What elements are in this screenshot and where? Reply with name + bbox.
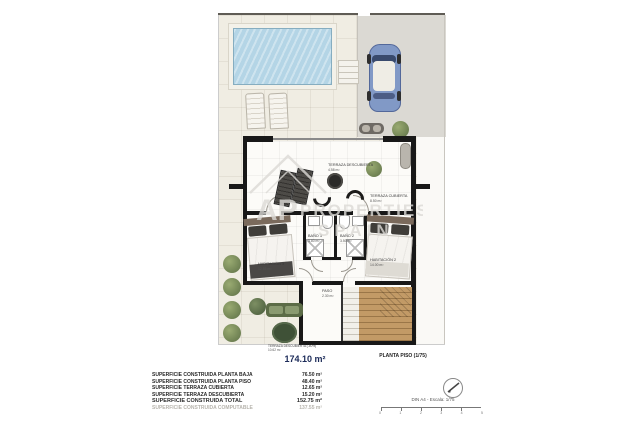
room-label-paso: PASO 2.30 m² xyxy=(322,289,334,298)
room-label-habitacion3: HABITACIÓN 3 12.55 m² xyxy=(258,262,284,271)
legend-row: SUPERFICIE CONSTRUIDA PLANTA BAJA 76.50 … xyxy=(152,372,322,379)
legend-row: SUPERFICIE TERRAZA CUBIERTA 12.65 m² xyxy=(152,385,322,392)
room-name: PASO xyxy=(322,289,334,294)
legend-value: 137.55 m² xyxy=(299,405,322,412)
garden-bench xyxy=(266,303,303,317)
bed-habitacion2 xyxy=(363,214,414,279)
terrace-round-table xyxy=(327,173,343,189)
car-roof xyxy=(373,61,395,91)
sink xyxy=(352,216,364,226)
staircase-landing xyxy=(343,287,359,341)
room-label-bano2: BAÑO 2 3.50 m² xyxy=(340,234,354,243)
plot-boundary-left xyxy=(218,15,219,345)
swimming-pool xyxy=(233,28,332,85)
terrace-railing xyxy=(273,138,383,140)
wall-terrace-pillar-left xyxy=(243,136,273,142)
room-name: BAÑO 2 xyxy=(340,234,354,239)
scale-tick: 2 xyxy=(420,411,422,415)
room-area: 12.55 m² xyxy=(258,267,284,271)
pool-water-texture xyxy=(234,29,331,84)
scale-tick: 1 xyxy=(399,411,401,415)
scale-tick: 3 xyxy=(440,411,442,415)
plot-boundary-top xyxy=(218,13,445,15)
wall-segment xyxy=(243,281,299,285)
legend-label: SUPERFICIE TERRAZA CUBIERTA xyxy=(152,385,234,392)
room-name: BAÑO 3 xyxy=(308,234,322,239)
bench-cushion xyxy=(285,306,299,314)
sun-lounger xyxy=(268,93,289,130)
floor-plan-sheet: TERRAZA DESCUBIERTA 4.58 m² TERRAZA CUBI… xyxy=(0,0,630,423)
bed-pillow xyxy=(370,223,389,234)
room-area: 14.00 m² xyxy=(370,263,396,267)
scale-tick: 4 xyxy=(461,411,463,415)
wall-terrace-pillar-right xyxy=(383,136,416,142)
plot-area-title: 174.10 m² xyxy=(230,354,380,364)
hedge-plant xyxy=(223,324,241,342)
car-wheel xyxy=(367,91,371,101)
sun-lounger xyxy=(245,93,266,130)
legend-row-computable: SUPERFICIE CONSTRUIDA COMPUTABLE 137.55 … xyxy=(152,405,322,412)
bed-pillow xyxy=(248,225,267,237)
wall-segment xyxy=(243,211,266,215)
staircase-upper-flight-hatch xyxy=(380,287,411,317)
legend-label: SUPERFICIE CONSTRUIDA PLANTA BAJA xyxy=(152,372,253,379)
side-walkway xyxy=(417,137,445,345)
wall-segment xyxy=(355,281,416,285)
exterior-steps xyxy=(338,60,359,84)
room-area: 4.58 m² xyxy=(328,168,373,172)
wall-stub-right xyxy=(416,184,430,189)
room-label-habitacion2: HABITACIÓN 2 14.00 m² xyxy=(370,258,396,267)
legend-label: SUPERFICIE CONSTRUIDA PLANTA PISO xyxy=(152,379,251,386)
toilet xyxy=(322,215,333,229)
gate-opening xyxy=(358,12,370,16)
room-label-terraza-cubierta: TERRAZA CUBIERTA 8.50 m² xyxy=(370,194,407,203)
bench-cushion xyxy=(269,306,283,314)
car-wheel xyxy=(397,54,401,64)
legend-label: SUPERFICIE TERRAZA DESCUBIERTA xyxy=(152,392,244,399)
car-wheel xyxy=(397,91,401,101)
room-label-terraza-garden: TERRAZA DESCUBIERTA (-50%) 10.62 m² xyxy=(268,345,316,353)
bathroom-wall xyxy=(303,257,311,260)
legend-label: SUPERFICIE CONSTRUIDA TOTAL xyxy=(152,398,242,405)
room-name: TERRAZA DESCUBIERTA xyxy=(328,163,373,168)
bed-habitacion3 xyxy=(243,215,295,281)
bed-pillow xyxy=(391,224,410,235)
legend-row-total: SUPERFICIE CONSTRUIDA TOTAL 152.75 m² xyxy=(152,398,322,405)
room-name: HABITACIÓN 2 xyxy=(370,258,396,263)
parked-car xyxy=(368,44,400,110)
garden-oval-table xyxy=(272,322,297,343)
garden-bush xyxy=(249,298,266,315)
room-label-terraza-descubierta: TERRAZA DESCUBIERTA 4.58 m² xyxy=(328,163,373,172)
outdoor-shower-board xyxy=(400,143,411,169)
wall-stub-left xyxy=(229,184,243,189)
bench-cushion xyxy=(362,125,370,132)
room-area: 3.80 m² xyxy=(308,239,322,243)
scale-tick: 5 xyxy=(481,411,483,415)
hedge-plant xyxy=(223,255,241,273)
sink xyxy=(308,216,320,226)
room-area: 8.50 m² xyxy=(370,199,407,203)
hedge-plant xyxy=(223,301,241,319)
legend-value: 12.65 m² xyxy=(302,385,322,392)
legend-value: 152.75 m² xyxy=(297,398,322,405)
scale-tick: 0 xyxy=(379,411,381,415)
legend-row: SUPERFICIE CONSTRUIDA PLANTA PISO 48.40 … xyxy=(152,379,322,386)
room-area: 2.30 m² xyxy=(322,294,334,298)
surface-legend: SUPERFICIE CONSTRUIDA PLANTA BAJA 76.50 … xyxy=(152,372,322,412)
legend-value: 76.50 m² xyxy=(302,372,322,379)
legend-label: SUPERFICIE CONSTRUIDA COMPUTABLE xyxy=(152,405,253,412)
bathroom-wall xyxy=(334,215,337,260)
bathroom-wall xyxy=(322,257,341,260)
bed-pillow xyxy=(269,223,288,235)
bench-cushion xyxy=(373,125,381,132)
car-wheel xyxy=(367,54,371,64)
car-rear-window xyxy=(373,93,395,99)
scale-text: DIN A4 - Escala: 1/75 xyxy=(393,397,473,402)
hedge-plant xyxy=(223,278,241,296)
wall-segment xyxy=(312,281,343,285)
room-name: HABITACIÓN 3 xyxy=(258,262,284,267)
room-area: 3.50 m² xyxy=(340,239,354,243)
room-name: TERRAZA CUBIERTA xyxy=(370,194,407,199)
legend-value: 48.40 m² xyxy=(302,379,322,386)
room-label-bano3: BAÑO 3 3.80 m² xyxy=(308,234,322,243)
plot-boundary-right xyxy=(444,15,445,345)
entry-bench xyxy=(359,123,384,134)
scale-tick-labels: 0 1 2 3 4 5 xyxy=(379,411,483,415)
room-area: 10.62 m² xyxy=(268,349,316,353)
toilet xyxy=(339,215,350,229)
wall-bottom xyxy=(299,341,416,345)
